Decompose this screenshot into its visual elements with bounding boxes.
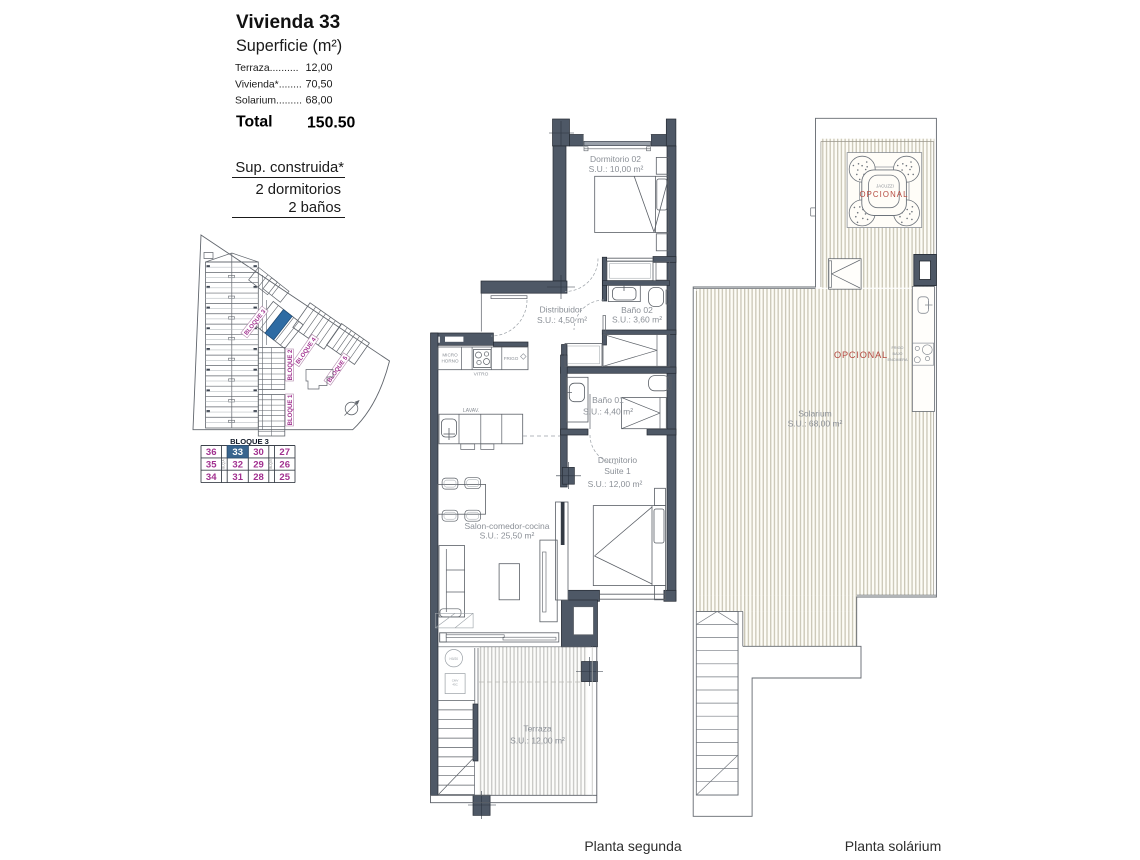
svg-text:28: 28 [253, 472, 264, 483]
svg-text:Suite 1: Suite 1 [604, 466, 631, 476]
svg-text:Dormitorio 02: Dormitorio 02 [590, 154, 641, 164]
svg-text:Baño 02: Baño 02 [621, 305, 653, 315]
svg-text:Dormitorio: Dormitorio [598, 455, 637, 465]
svg-text:Solarium: Solarium [798, 409, 832, 419]
svg-text:S.U.: 12,00 m²: S.U.: 12,00 m² [510, 736, 565, 746]
svg-text:35: 35 [206, 460, 217, 471]
svg-text:68,00: 68,00 [305, 95, 332, 107]
svg-text:OPCIONAL: OPCIONAL [834, 350, 888, 360]
svg-text:H0/20: H0/20 [450, 657, 459, 661]
svg-text:BAJO: BAJO [893, 352, 903, 356]
svg-text:Superficie (m²): Superficie (m²) [236, 37, 342, 55]
svg-text:12,00: 12,00 [305, 62, 332, 74]
svg-text:29: 29 [253, 460, 264, 471]
svg-text:HORNO: HORNO [441, 359, 459, 364]
svg-text:26: 26 [279, 460, 290, 471]
svg-text:2 baños: 2 baños [288, 200, 341, 216]
svg-text:25: 25 [279, 472, 290, 483]
svg-text:FRIGO: FRIGO [504, 356, 519, 361]
svg-text:BLOQUE 3: BLOQUE 3 [230, 437, 269, 446]
svg-text:34: 34 [206, 472, 217, 483]
svg-text:BLQ.A: BLQ.A [222, 458, 226, 468]
svg-text:70,50: 70,50 [305, 79, 332, 91]
svg-text:S.U.: 25,50 m²: S.U.: 25,50 m² [480, 531, 535, 541]
svg-text:30: 30 [253, 447, 264, 458]
svg-text:FRIGO: FRIGO [891, 346, 903, 350]
svg-text:S.U.: 4,50 m²: S.U.: 4,50 m² [537, 315, 587, 325]
svg-text:S.U.: 10,00 m²: S.U.: 10,00 m² [589, 164, 644, 174]
svg-text:Distribuidor: Distribuidor [540, 305, 583, 315]
svg-text:Planta segunda: Planta segunda [584, 838, 682, 854]
svg-text:BLQ.B: BLQ.B [269, 459, 273, 468]
svg-text:32: 32 [232, 460, 243, 471]
svg-text:2 dormitorios: 2 dormitorios [255, 182, 341, 198]
svg-text:S.U.: 3,60 m²: S.U.: 3,60 m² [612, 315, 662, 325]
svg-text:Baño 01: Baño 01 [592, 395, 624, 405]
svg-text:S.U.: 68,00 m²: S.U.: 68,00 m² [788, 419, 843, 429]
svg-text:36: 36 [206, 447, 217, 458]
svg-text:31: 31 [232, 472, 243, 483]
svg-text:Sup. construida*: Sup. construida* [235, 160, 344, 176]
svg-text:BLOQUE 4: BLOQUE 4 [295, 336, 318, 365]
svg-text:33: 33 [232, 447, 243, 458]
svg-text:Solarium.........: Solarium......... [235, 96, 302, 107]
svg-text:OPCIONAL: OPCIONAL [859, 190, 908, 199]
svg-text:LAVAV.: LAVAV. [463, 408, 480, 414]
svg-text:MICRO: MICRO [442, 353, 458, 358]
svg-text:45C: 45C [452, 683, 458, 687]
svg-text:ENCIMERA: ENCIMERA [887, 358, 908, 362]
svg-text:S.U.: 4,40 m²: S.U.: 4,40 m² [583, 407, 633, 417]
svg-text:Planta solárium: Planta solárium [845, 838, 942, 854]
svg-text:27: 27 [279, 447, 290, 458]
svg-text:150.50: 150.50 [307, 115, 356, 132]
svg-text:BLOQUE 2: BLOQUE 2 [288, 349, 294, 380]
svg-text:Total: Total [236, 114, 273, 131]
svg-text:Vivienda*........: Vivienda*........ [235, 80, 302, 91]
svg-text:BLOQUE 1: BLOQUE 1 [288, 394, 294, 425]
svg-text:JACUZZI: JACUZZI [876, 184, 894, 189]
svg-text:S.U.: 12,00 m²: S.U.: 12,00 m² [588, 479, 643, 489]
svg-text:Terraza..........: Terraza.......... [235, 63, 299, 74]
svg-text:VITRO: VITRO [474, 372, 489, 378]
svg-text:Vivienda 33: Vivienda 33 [236, 12, 340, 33]
svg-text:Salon-comedor-cocina: Salon-comedor-cocina [464, 521, 549, 531]
svg-text:Terraza: Terraza [523, 724, 552, 734]
